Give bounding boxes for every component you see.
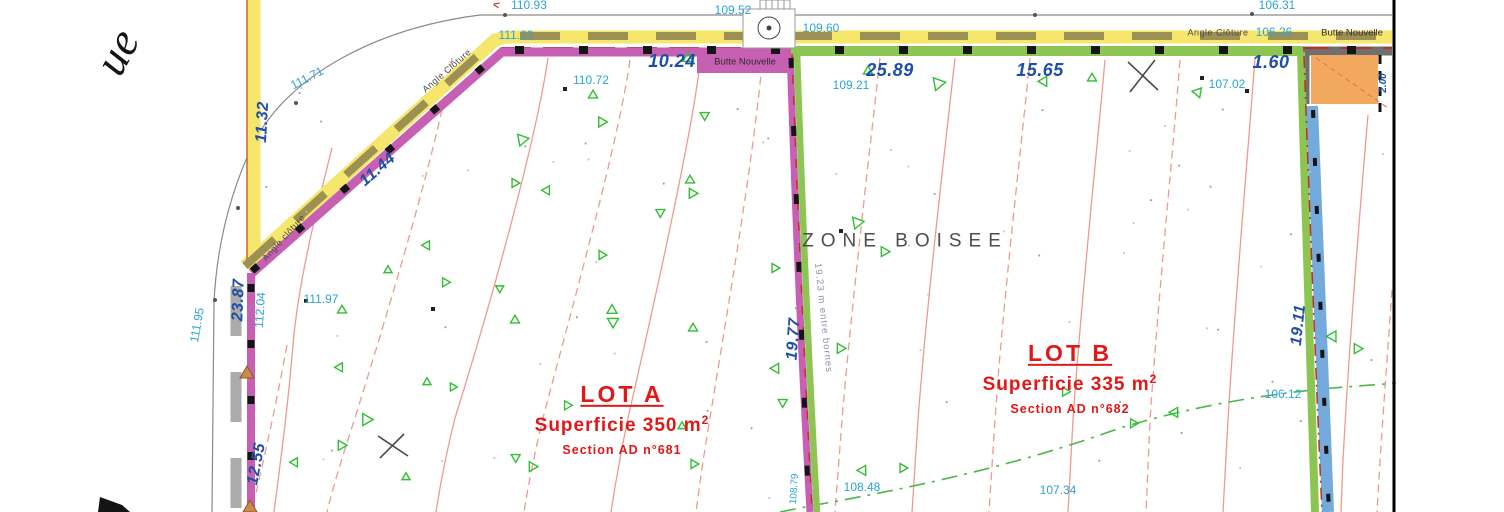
tree-symbol [857,463,870,475]
tree-symbol [1326,328,1340,342]
terrain-speck [835,173,837,175]
terrain-speck [1123,252,1125,254]
terrain-speck [553,161,555,163]
tree-symbol [439,276,451,287]
tree-symbol [290,456,302,467]
tree-symbol [685,186,698,198]
terrain-speck [1098,460,1100,462]
tree-symbol [542,184,554,195]
terrain-speck [927,294,929,296]
tree-symbol [358,414,374,429]
yellow-verge-band [245,0,1392,268]
lot-b-title: LOT B [983,340,1158,367]
tree-symbol [686,175,695,183]
lot-b-superficie: Superficie 335 m2 [983,372,1158,396]
terrain-speck [1042,109,1044,111]
street-letter-fragment [98,497,130,512]
orange-parcel [1311,55,1388,112]
lot-b-section: Section AD n°682 [983,402,1158,416]
point-marker [431,307,435,311]
dimension-label: 15.65 [1016,61,1064,79]
terrain-speck [1309,171,1311,173]
terrain-speck [1239,467,1241,469]
tree-symbol [450,383,457,391]
terrain-speck [299,92,301,94]
butte-nouvelle-label: Butte Nouvelle [714,57,776,67]
terrain-speck [1210,186,1212,188]
tree-symbol [1350,344,1363,356]
tree-symbol [511,315,520,323]
terrain-speck [540,363,542,365]
dimension-label: 2.00 [1379,73,1389,92]
terrain-speck [1150,199,1152,201]
dimension-label: 25.89 [866,61,914,79]
elevation-label: 112.04 [253,292,267,329]
terrain-speck [934,193,936,195]
tree-symbol [607,305,617,314]
terrain-speck [1371,359,1373,361]
tree-symbol [654,206,665,218]
terrain-speck [331,450,333,452]
terrain-speck [614,353,616,355]
dimension-label: 23.87 [230,278,247,321]
tree-symbol [514,134,529,148]
terrain-speck [323,459,325,461]
terrain-speck [595,261,597,263]
tree-symbol [691,460,699,469]
terrain-speck [265,186,267,188]
terrain-speck [422,175,424,177]
zone-boisee-label: ZONE BOISEE [802,232,1008,251]
terrain-speck [1260,266,1262,268]
terrain-speck [890,149,892,151]
tree-symbol [689,323,698,331]
tree-symbol [930,78,946,93]
cadastral-plan-canvas: LOT A Superficie 350 m2 Section AD n°681… [0,0,1504,512]
terrain-speck [768,497,770,499]
elevation-label: 111.97 [304,293,339,305]
lot-b-label: LOT B Superficie 335 m2 Section AD n°682 [983,340,1158,416]
terrain-speck [467,169,469,171]
tree-symbol [599,117,608,127]
terrain-speck [1069,321,1071,323]
tree-symbol [770,361,783,373]
tree-symbol [496,282,506,292]
tree-symbol [1192,85,1205,98]
elevation-label: 106.26 [1256,26,1293,38]
terrain-speck [493,457,495,459]
tree-symbol [423,378,431,385]
terrain-speck [795,307,797,309]
terrain-speck [576,316,578,318]
terrain-speck [1222,109,1224,111]
magenta-boundary [251,50,810,512]
plan-geometry [0,0,1504,512]
terrain-speck [946,401,948,403]
butte-nouvelle-label: Butte Nouvelle [1321,28,1383,38]
dimension-label: 1.60 [1252,53,1289,71]
tree-symbol [335,361,347,372]
elevation-label: 109.52 [715,4,752,16]
red-boundary-dashes [792,54,1322,512]
terrain-speck [920,349,922,351]
tree-symbol [512,179,520,188]
elevation-label: 107.02 [1209,78,1246,90]
terrain-speck [1187,209,1189,211]
green-boundary [791,51,1315,512]
point-marker [1200,76,1204,80]
tree-symbol [900,464,908,473]
terrain-speck [588,159,590,161]
elevation-label: 110.72 [573,74,609,86]
tree-symbol [1127,417,1139,428]
elevation-label: 109.21 [833,79,870,91]
dimension-label: 11.32 [254,101,272,143]
terrain-speck [1300,420,1302,422]
terrain-speck [767,138,769,140]
terrain-speck [1178,165,1180,167]
terrain-speck [445,326,447,328]
tree-symbol [608,318,619,327]
terrain-speck [1217,329,1219,331]
elevation-label: 106.12 [1265,388,1302,400]
lot-a-label: LOT A Superficie 350 m2 Section AD n°681 [535,381,710,457]
terrain-speck [1206,327,1208,329]
tree-symbol [772,264,780,273]
elevation-label: 110.93 [511,0,547,11]
tree-symbol [778,396,789,408]
terrain-speck [441,460,443,462]
sheet-margin [1396,0,1504,512]
elevation-label: 111.23 [499,29,534,41]
elevation-label: 108.79 [789,473,801,504]
terrain-speck [1272,381,1274,383]
lot-a-title: LOT A [535,381,710,408]
terrain-speck [737,108,739,110]
terrain-speck [762,142,764,144]
terrain-speck [1322,407,1324,409]
tree-symbol [402,473,410,480]
terrain-speck [1129,150,1131,152]
tree-symbol [1088,73,1097,81]
elevation-label: 107.34 [1040,484,1077,496]
tree-symbol [511,451,522,463]
terrain-speck [320,121,322,123]
tree-symbol [599,251,607,260]
terrain-speck [1133,222,1135,224]
dimension-label: 19.77 [785,317,804,361]
terrain-speck [1181,432,1183,434]
elevation-label: 109.60 [803,22,840,34]
tree-symbol [384,266,392,273]
terrain-speck [306,211,308,213]
tree-symbol [1169,405,1182,417]
terrain-speck [663,183,665,185]
terrain-speck [1164,125,1166,127]
point-marker [563,87,567,91]
elevation-label: 108.48 [844,481,881,493]
tree-symbol [589,90,598,98]
dimension-label: 10.24 [648,52,696,70]
lot-a-superficie: Superficie 350 m2 [535,413,710,437]
terrain-speck [985,468,987,470]
terrain-speck [1382,153,1384,155]
terrain-speck [751,427,753,429]
elevation-label: 106.31 [1259,0,1296,11]
terrain-speck [524,145,526,147]
tree-symbol [833,341,846,353]
terrain-speck [908,166,910,168]
tree-symbol [338,305,347,313]
terrain-speck [1038,255,1040,257]
terrain-speck [1290,233,1292,235]
tree-symbol [700,109,711,121]
lot-a-section: Section AD n°681 [535,443,710,457]
terrain-speck [585,143,587,145]
terrain-speck [706,341,708,343]
angle-cloture-label: Angle Clôture [1187,29,1248,38]
terrain-speck [336,335,338,337]
tree-symbol [422,239,434,250]
